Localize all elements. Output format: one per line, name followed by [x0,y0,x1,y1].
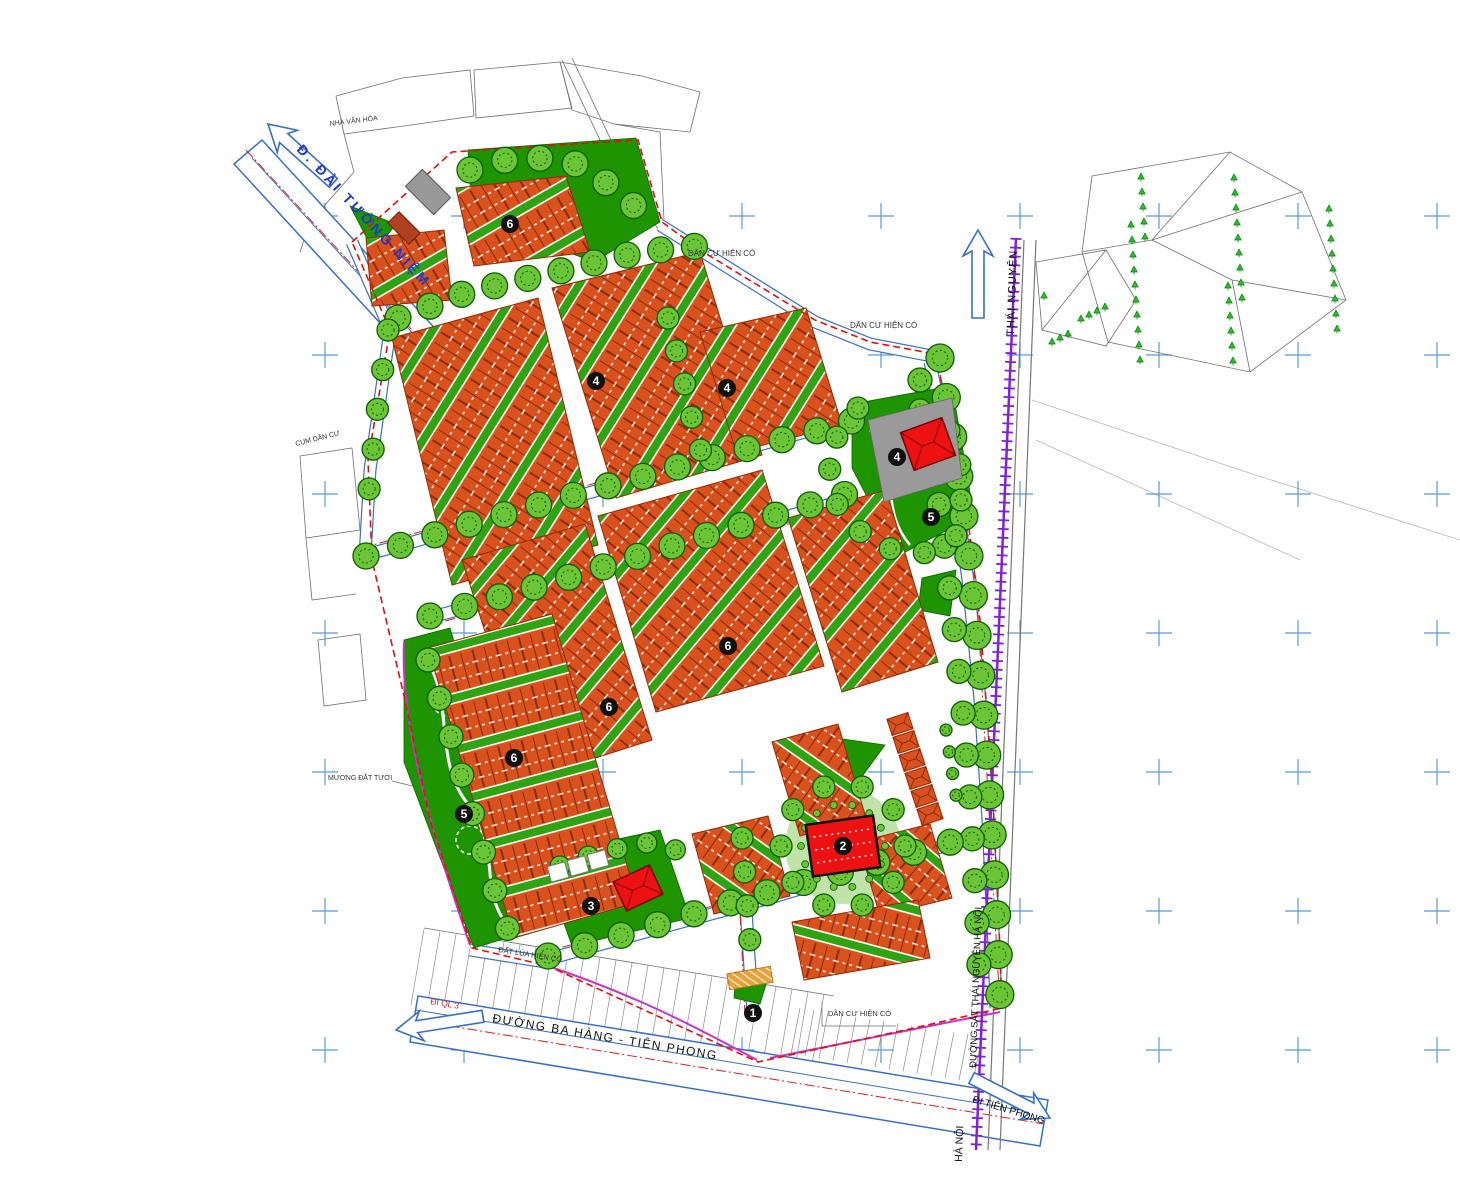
tree-icon [942,618,966,642]
tree-icon [666,340,688,362]
tree-icon [940,724,952,736]
svg-text:5: 5 [461,807,468,821]
shrub-icon [830,883,837,890]
zone-marker: 5 [922,508,940,526]
grid-cross-icon [1424,759,1450,785]
tree-icon [945,525,967,547]
tree-icon [515,265,541,291]
tree-icon [657,307,679,329]
tree-icon [813,894,835,916]
tree-icon [439,725,463,749]
conifer-tree-icon [1229,342,1235,351]
tree-icon [593,170,619,196]
conifer-tree-icon [1139,188,1145,197]
conifer-tree-icon [1238,279,1244,288]
tree-icon [674,373,696,395]
tree-icon [621,193,647,219]
tree-icon [581,250,607,276]
tree-icon [908,368,932,392]
entrance-crossing [727,966,773,989]
tree-icon [491,502,517,528]
conifer-tree-icon [1141,218,1147,227]
tree-icon [739,929,761,951]
conifer-tree-icon [1132,281,1138,290]
tree-icon [457,157,483,183]
conifer-tree-icon [1235,234,1241,243]
tree-icon [694,523,720,549]
tree-icon [556,564,582,590]
grid-cross-icon [312,898,338,924]
conifer-tree-icon [1228,327,1234,336]
tree-icon [665,454,691,480]
grid-cross-icon [729,203,755,229]
tree-icon [913,542,935,564]
tree-icon [387,532,413,558]
tree-icon [947,659,971,683]
tree-icon [492,147,518,173]
grid-cross-icon [1285,620,1311,646]
grid-cross-icon [1007,481,1033,507]
tree-icon [482,273,508,299]
grid-cross-icon [1285,342,1311,368]
grid-cross-icon [312,481,338,507]
zone-marker: 3 [582,897,600,915]
tree-icon [882,871,904,893]
tree-icon [763,502,789,528]
tree-icon [826,493,848,515]
tree-icon [645,912,671,938]
tree-icon [819,458,841,480]
tree-icon [366,398,388,420]
tree-icon [521,574,547,600]
grid-cross-icon [1285,1037,1311,1063]
area-label-nha-van-hoa: NHÀ VĂN HÓA [329,113,378,128]
svg-text:6: 6 [511,751,518,765]
conifer-tree-icon [1130,251,1136,260]
tree-icon [849,521,871,543]
existing-trees-layer [1041,173,1340,366]
tree-icon [358,478,380,500]
tree-icon [959,582,987,610]
tree-icon [782,799,804,821]
grid-cross-icon [1424,342,1450,368]
shrub-icon [798,843,805,850]
zone-marker: 4 [587,372,605,390]
grid-cross-icon [1285,759,1311,785]
tree-icon [607,839,627,859]
zone-marker: 5 [455,805,473,823]
svg-text:6: 6 [725,639,732,653]
zone-marker: 1 [744,1004,762,1022]
conifer-tree-icon [1230,357,1236,366]
road-label-thai-nguyen: THÁI NGUYÊN [1004,250,1020,337]
tree-icon [826,426,848,448]
grid-cross-icon [1285,898,1311,924]
tree-icon [947,768,959,780]
shrub-icon [802,861,809,868]
zone-marker: 6 [505,749,523,767]
grid-cross-icon [1146,1037,1172,1063]
tree-icon [882,799,904,821]
grid-cross-icon [1007,1037,1033,1063]
svg-text:6: 6 [606,700,613,714]
tree-icon [377,319,399,341]
tree-icon [950,489,972,511]
grid-cross-icon [1285,481,1311,507]
svg-text:4: 4 [894,450,901,464]
tree-icon [449,281,475,307]
tree-icon [526,492,552,518]
tree-icon [452,593,478,619]
tree-icon [665,840,685,860]
tree-icon [731,827,753,849]
conifer-tree-icon [1078,315,1084,324]
grid-cross-icon [1007,898,1033,924]
grid-cross-icon [1146,620,1172,646]
tree-icon [417,293,443,319]
conifer-tree-icon [1332,295,1338,304]
conifer-tree-icon [1236,249,1242,258]
tree-icon [562,151,588,177]
shrub-icon [866,875,873,882]
grid-cross-icon [1146,203,1172,229]
tree-icon [782,871,804,893]
shrub-icon [882,843,889,850]
tree-icon [734,436,760,462]
conifer-tree-icon [1329,250,1335,259]
tree-icon [938,576,962,600]
zone-marker: 4 [888,448,906,466]
conifer-tree-icon [1327,220,1333,229]
conifer-tree-icon [1128,221,1134,230]
conifer-tree-icon [1239,294,1245,303]
tree-icon [851,894,873,916]
conifer-tree-icon [1135,326,1141,335]
area-label-dan-cu-3: DÂN CƯ HIỆN CÓ [828,1009,891,1018]
grid-cross-icon [868,203,894,229]
tree-icon [417,603,443,629]
grid-cross-icon [1424,481,1450,507]
conifer-tree-icon [1094,307,1100,316]
conifer-tree-icon [1086,311,1092,320]
conifer-tree-icon [1131,266,1137,275]
tree-icon [950,789,962,801]
tree-icon [937,829,963,855]
grid-cross-icon [1146,481,1172,507]
road-label-ha-noi: HÀ NỘI [952,1126,966,1163]
shrub-icon [877,824,884,831]
conifer-tree-icon [1102,303,1108,312]
tree-icon [797,492,823,518]
tree-icon [496,916,520,940]
shrub-icon [849,883,856,890]
tree-icon [963,869,987,893]
tree-icon [483,879,507,903]
shrub-icon [813,810,820,817]
tree-icon [648,237,674,263]
svg-text:5: 5 [928,510,935,524]
conifer-tree-icon [1330,265,1336,274]
shrub-icon [830,802,837,809]
tree-icon [847,397,869,419]
zone-marker: 6 [719,637,737,655]
area-label-muong-tuoi: MƯƠNG ĐẤT TƯỚI [328,772,392,782]
grid-cross-icon [1424,898,1450,924]
grid-cross-icon [729,759,755,785]
conifer-tree-icon [1233,204,1239,213]
conifer-tree-icon [1140,203,1146,212]
conifer-tree-icon [1225,282,1231,291]
conifer-tree-icon [1041,292,1047,301]
conifer-tree-icon [1331,280,1337,289]
arrow-thai-nguyen-icon [963,230,993,318]
tree-icon [770,835,792,857]
svg-text:1: 1 [750,1006,757,1020]
tree-icon [428,686,452,710]
conifer-tree-icon [1326,205,1332,214]
conifer-tree-icon [1226,297,1232,306]
grid-cross-icon [312,620,338,646]
conifer-tree-icon [1227,312,1233,321]
site-plan-drawing: 6 4 4 4 5 6 6 6 5 2 3 1 Đ. ĐÀI TƯỞNG NIỆ… [0,0,1460,1200]
grid-cross-icon [1146,759,1172,785]
tree-icon [637,833,657,853]
grid-cross-icon [1424,1037,1450,1063]
tree-icon [630,463,656,489]
shrub-icon [849,802,856,809]
master-plan-canvas: 6 4 4 4 5 6 6 6 5 2 3 1 Đ. ĐÀI TƯỞNG NIỆ… [0,0,1460,1200]
tree-icon [894,835,916,857]
grid-cross-icon [868,1037,894,1063]
zone-marker: 2 [834,837,852,855]
conifer-tree-icon [1333,310,1339,319]
grid-cross-icon [1146,898,1172,924]
tree-icon [625,543,651,569]
grid-cross-icon [1007,203,1033,229]
area-label-dan-cu-2: DÂN CƯ HIỆN CÓ [850,321,917,330]
tree-icon [734,861,756,883]
conifer-tree-icon [1232,189,1238,198]
tree-icon [572,933,598,959]
tree-icon [813,776,835,798]
conifer-tree-icon [1231,174,1237,183]
grid-cross-icon [1285,203,1311,229]
svg-text:4: 4 [724,381,731,395]
tree-icon [926,344,954,372]
existing-building-gray [405,169,450,214]
tree-icon [548,258,574,284]
tree-icon [690,439,712,461]
tree-icon [879,538,901,560]
conifer-tree-icon [1134,311,1140,320]
tree-icon [659,533,685,559]
area-label-cum-dan-cu: CỤM DÂN CƯ [294,428,340,448]
conifer-tree-icon [1049,338,1055,347]
grid-cross-icon [1007,759,1033,785]
tree-icon [472,840,496,864]
svg-text:2: 2 [840,839,847,853]
area-label-dan-cu-1: DÂN CƯ HIỆN CÓ [688,249,755,258]
svg-text:4: 4 [593,374,600,388]
zone-marker: 6 [600,698,618,716]
conifer-tree-icon [1234,219,1240,228]
svg-text:6: 6 [507,217,514,231]
tree-icon [450,763,474,787]
tree-icon [590,554,616,580]
svg-text:3: 3 [588,899,595,913]
tree-icon [943,746,955,758]
zone-marker: 6 [501,215,519,233]
tree-icon [728,512,754,538]
tree-icon [527,145,553,171]
tree-icon [372,359,394,381]
conifer-tree-icon [1237,264,1243,273]
zone-marker: 4 [718,379,736,397]
grid-cross-icon [1424,203,1450,229]
tree-icon [353,543,379,569]
conifer-tree-icon [1138,173,1144,182]
tree-icon [614,242,640,268]
tree-icon [416,648,440,672]
tree-icon [954,743,978,767]
tree-icon [769,427,795,453]
tree-icon [422,522,448,548]
tree-icon [595,473,621,499]
conifer-tree-icon [1142,233,1148,242]
tree-icon [986,981,1014,1009]
conifer-tree-icon [1328,235,1334,244]
grid-cross-icon [312,342,338,368]
tree-icon [681,901,707,927]
housing-block [456,176,590,266]
tree-icon [681,406,703,428]
conifer-tree-icon [1137,356,1143,365]
tree-icon [362,438,384,460]
tree-icon [456,511,482,537]
tree-icon [851,776,873,798]
tree-icon [560,482,586,508]
grid-cross-icon [1424,620,1450,646]
tree-icon [951,701,975,725]
tree-icon [963,621,991,649]
tree-icon [486,584,512,610]
tree-icon [960,827,984,851]
grid-cross-icon [312,1037,338,1063]
tree-icon [736,895,758,917]
conifer-tree-icon [1334,325,1340,334]
tree-icon [608,922,634,948]
